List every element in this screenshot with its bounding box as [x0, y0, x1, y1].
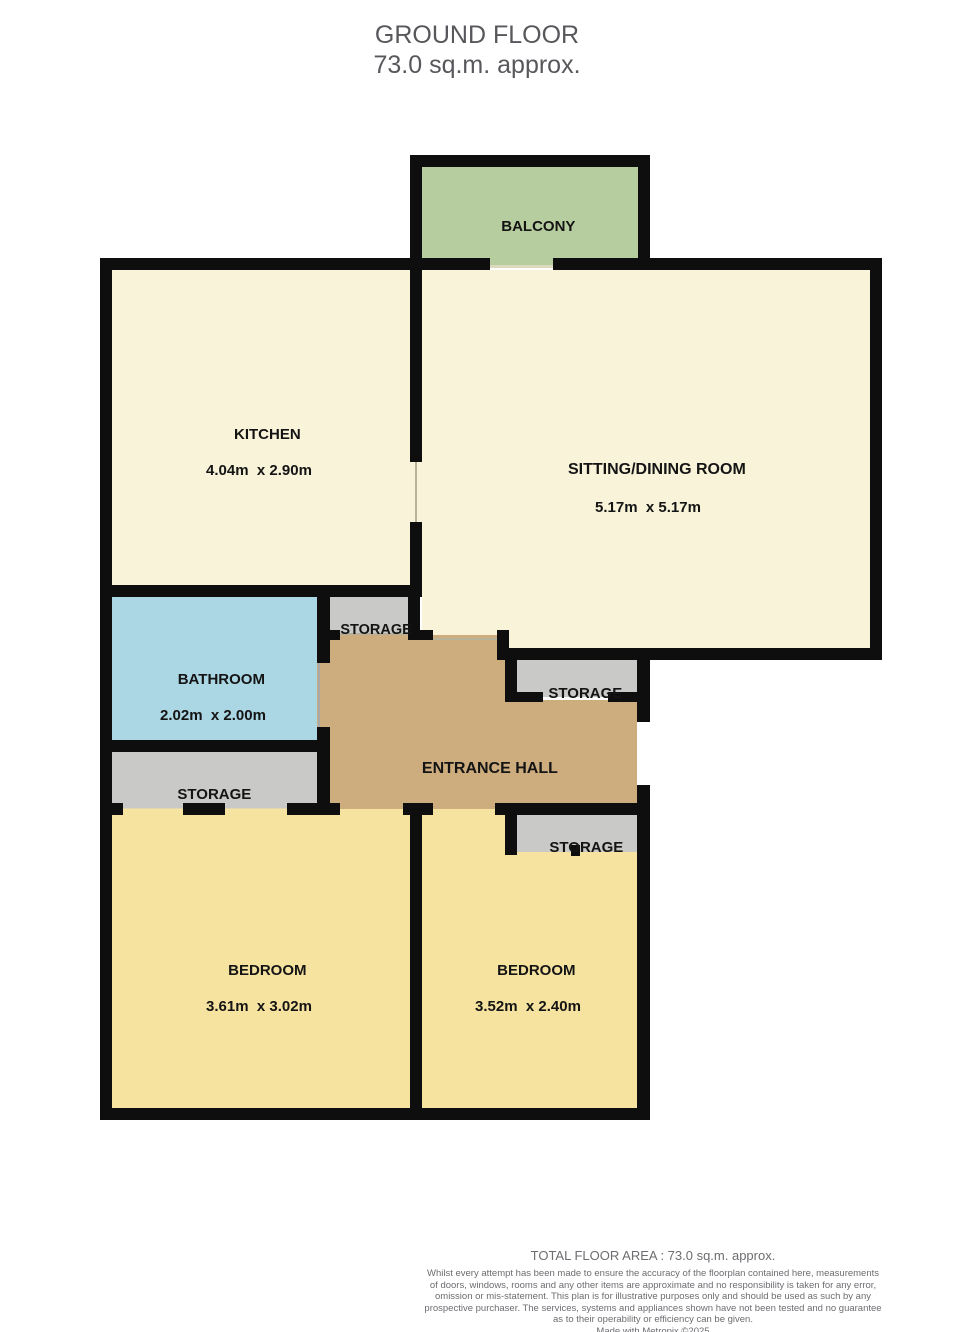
kitchen-sitting-opening-line	[415, 462, 417, 522]
storage-hall-text: STORAGE	[548, 685, 622, 702]
bathroom-label: BATHROOM 2.02m x 2.00m	[160, 653, 266, 761]
disclaimer-text: Whilst every attempt has been made to en…	[328, 1268, 978, 1326]
wall-balcony-left	[410, 155, 422, 258]
storage-bedroom2-label: STORAGE	[533, 821, 624, 875]
bedroom1-door-opening	[340, 803, 403, 815]
wall-balcony-top	[410, 155, 650, 167]
plan-title-area: 73.0 sq.m. approx.	[0, 50, 954, 80]
balcony-label: BALCONY	[485, 200, 576, 254]
wall-right-lower-upper	[637, 660, 650, 722]
wall-bedroom1-top-a	[100, 803, 123, 815]
entrance-hall-label: ENTRANCE HALL	[404, 740, 558, 797]
wall-storage-bedroom2-left	[505, 803, 517, 855]
storage-bedroom2-text: STORAGE	[549, 839, 623, 856]
bedroom1-name: BEDROOM	[228, 962, 306, 979]
plan-title-floor: GROUND FLOOR	[0, 20, 954, 50]
bedroom2-dims: 3.52m x 2.40m	[475, 998, 581, 1016]
kitchen-dims: 4.04m x 2.90m	[206, 462, 312, 480]
bedroom1-dims: 3.61m x 3.02m	[206, 998, 312, 1016]
plan-title: GROUND FLOOR 73.0 sq.m. approx.	[0, 20, 954, 80]
kitchen-name: KITCHEN	[234, 426, 301, 443]
wall-right-lower-main	[637, 785, 650, 1120]
wall-right-upper	[870, 258, 882, 660]
sitting-dining-label: SITTING/DINING ROOM 5.17m x 5.17m	[550, 441, 746, 555]
storage-hall-label: STORAGE	[532, 667, 623, 721]
bathroom-dims: 2.02m x 2.00m	[160, 707, 266, 725]
storage-bathroom-label: STORAGE	[161, 768, 252, 822]
floorplan-canvas: GROUND FLOOR 73.0 sq.m. approx.	[0, 0, 980, 1332]
wall-top-left	[100, 258, 490, 270]
wall-sitting-bottom	[637, 648, 882, 660]
wall-storage-hall-top	[497, 648, 650, 660]
storage-kitchen-text: STORAGE	[340, 622, 411, 638]
sitting-hall-opening	[433, 640, 497, 650]
kitchen-label: KITCHEN 4.04m x 2.90m	[206, 408, 312, 516]
bathroom-name: BATHROOM	[178, 671, 265, 688]
sitting-dining-dims: 5.17m x 5.17m	[550, 498, 746, 517]
wall-bottom	[100, 1108, 650, 1120]
footer: TOTAL FLOOR AREA : 73.0 sq.m. approx. Wh…	[328, 1248, 978, 1332]
wall-bedroom-divider	[410, 812, 422, 1120]
wall-kitchen-divider-upper	[410, 270, 422, 462]
bedroom2-label: BEDROOM 3.52m x 2.40m	[475, 944, 581, 1052]
wall-left	[100, 258, 112, 1120]
balcony-name: BALCONY	[501, 218, 575, 235]
entrance-hall-name: ENTRANCE HALL	[422, 760, 558, 777]
total-floor-area: TOTAL FLOOR AREA : 73.0 sq.m. approx.	[328, 1248, 978, 1264]
wall-top-right	[553, 258, 882, 270]
wall-balcony-right	[638, 155, 650, 258]
storage-bathroom-text: STORAGE	[177, 786, 251, 803]
sitting-dining-name: SITTING/DINING ROOM	[568, 461, 746, 478]
bedroom1-label: BEDROOM 3.61m x 3.02m	[206, 944, 312, 1052]
bedroom2-door-opening	[433, 803, 495, 815]
wall-bathroom-top	[100, 585, 422, 597]
bathroom-door-line	[318, 663, 320, 727]
storage-kitchen-label: STORAGE	[324, 603, 412, 657]
balcony-door-threshold	[490, 265, 553, 268]
wall-bedroom1-top-c	[287, 803, 340, 815]
bedroom2-name: BEDROOM	[497, 962, 575, 979]
sitting-hall-opening-line	[433, 638, 497, 640]
wall-bedroom2-top	[495, 803, 650, 815]
metropix-credit: Made with Metropix ©2025	[328, 1326, 978, 1332]
